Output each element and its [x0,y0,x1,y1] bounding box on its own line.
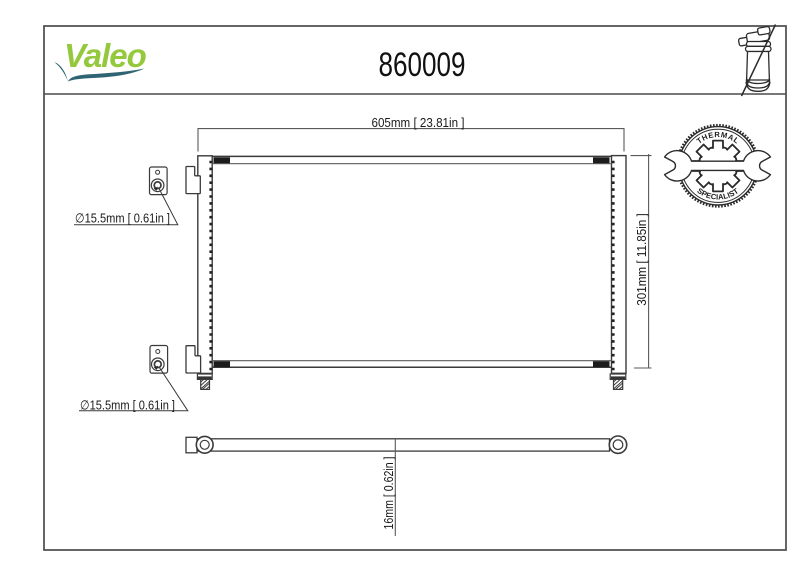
svg-text:301mm [ 11.85in ]: 301mm [ 11.85in ] [634,213,649,306]
svg-text:∅15.5mm [ 0.61in ]: ∅15.5mm [ 0.61in ] [80,398,175,413]
svg-text:605mm [ 23.81in ]: 605mm [ 23.81in ] [372,115,465,130]
svg-text:Valeo: Valeo [64,37,147,74]
svg-text:16mm [ 0.62in ]: 16mm [ 0.62in ] [381,457,396,530]
svg-text:860009: 860009 [379,46,466,84]
svg-text:∅15.5mm [ 0.61in ]: ∅15.5mm [ 0.61in ] [75,211,170,226]
